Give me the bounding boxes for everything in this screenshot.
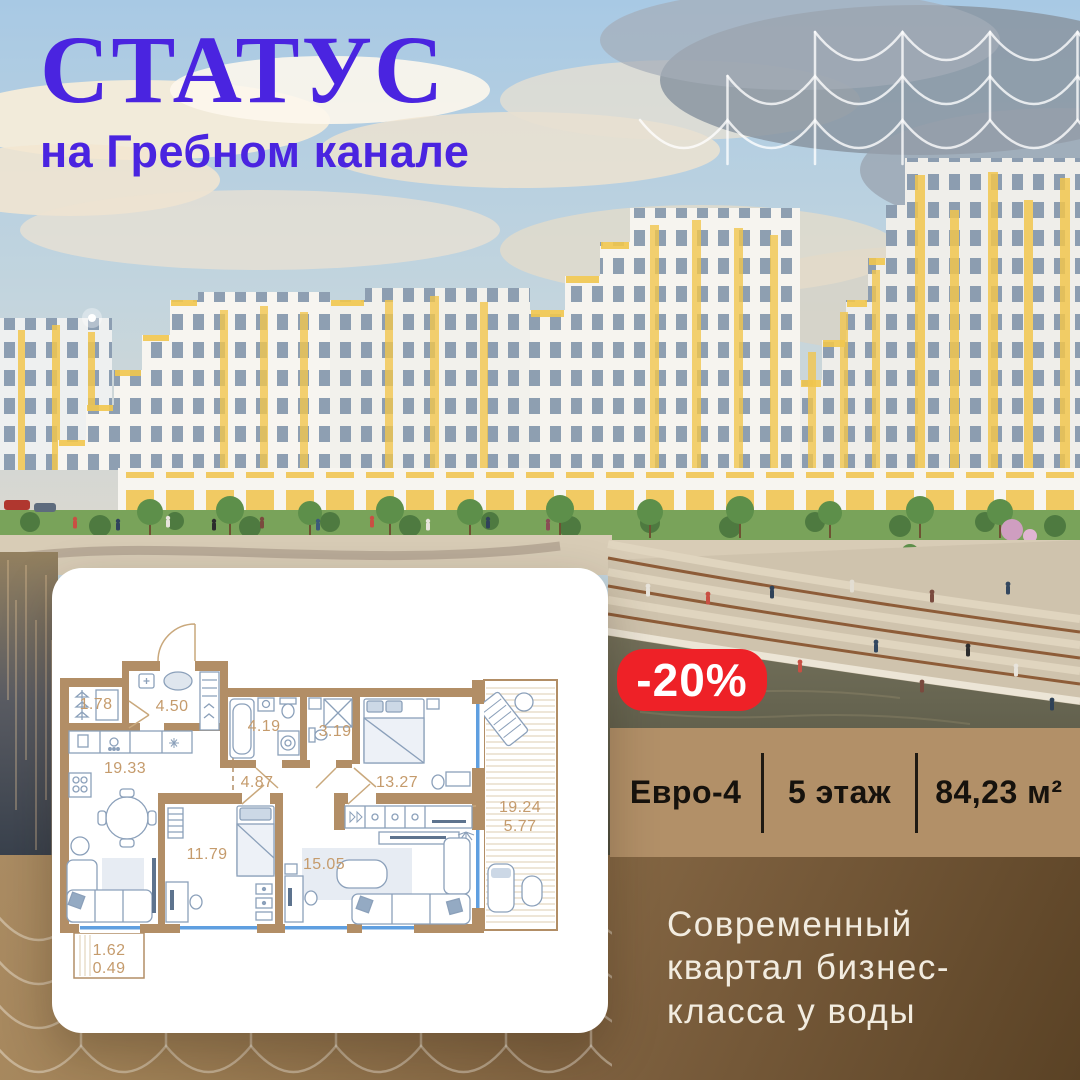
car <box>34 503 56 512</box>
tagline-line: класса у воды <box>667 990 950 1033</box>
tagline-line: Современный <box>667 903 950 946</box>
side-table <box>522 876 542 906</box>
room-label: 1.78 <box>80 696 113 713</box>
discount-badge: -20% <box>617 649 767 711</box>
room-label: 19.33 <box>104 760 146 777</box>
room-label: 3.19 <box>319 723 352 740</box>
room-label: 4.87 <box>241 774 274 791</box>
logo-title: СТАТУС <box>40 22 469 118</box>
poster: СТАТУС на Гребном канале -20% Евро-4 5 э… <box>0 0 1080 1080</box>
discount-value: -20% <box>636 653 747 707</box>
building-center-left <box>330 288 530 470</box>
tagline: Современный квартал бизнес- класса у вод… <box>667 903 950 1033</box>
terrace-area-label: 19.24 <box>499 799 541 816</box>
info-band: Евро-4 5 этаж 84,23 м² <box>610 728 1080 857</box>
room-label: 11.79 <box>187 846 228 863</box>
room-label: 15.05 <box>303 856 345 873</box>
retail-strip <box>118 468 1080 514</box>
tagline-line: квартал бизнес- <box>667 946 950 989</box>
floorplan: 1.78 4.50 19.33 4.19 3.19 4.87 13.27 11.… <box>52 568 608 1033</box>
terrace-area-label: 5.77 <box>504 818 537 835</box>
balcony-area-label: 1.62 <box>93 942 126 959</box>
room-label: 4.19 <box>248 718 281 735</box>
entrance-door-arc <box>158 624 195 661</box>
offer-area: 84,23 м² <box>918 774 1080 811</box>
car <box>4 500 30 510</box>
balcony-area-label: 0.49 <box>93 960 126 977</box>
canal-water <box>0 552 58 880</box>
logo: СТАТУС на Гребном канале <box>40 22 469 178</box>
room-label: 4.50 <box>156 698 189 715</box>
terrace-table <box>515 693 533 711</box>
logo-subtitle: на Гребном канале <box>40 126 469 178</box>
offer-floor: 5 этаж <box>764 774 914 811</box>
floorplan-card: 1.78 4.50 19.33 4.19 3.19 4.87 13.27 11.… <box>52 568 608 1033</box>
room-label: 13.27 <box>376 774 418 791</box>
flower-bush <box>1001 519 1023 541</box>
offer-layout: Евро-4 <box>610 774 761 811</box>
